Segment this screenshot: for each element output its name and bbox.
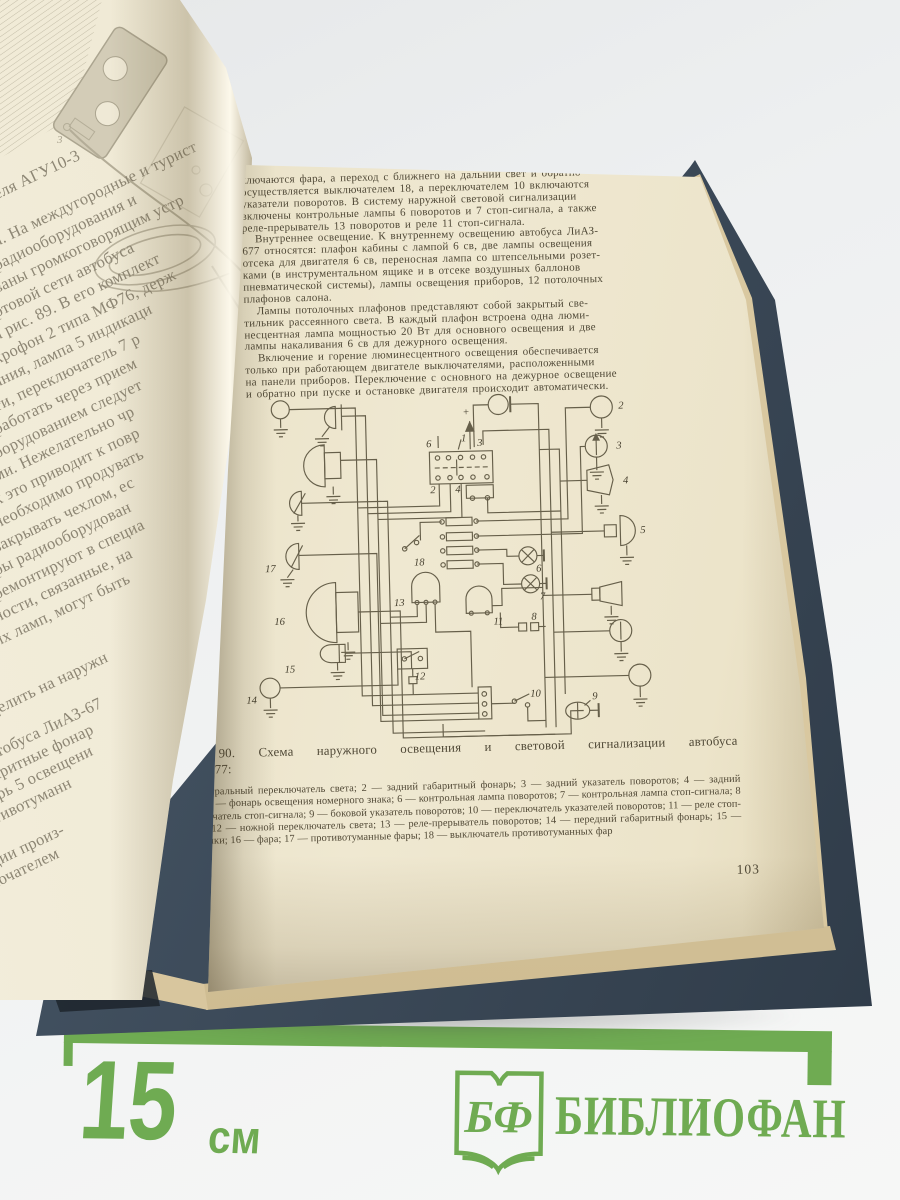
logo-monogram: БФ bbox=[463, 1091, 534, 1143]
diagram-label: 4 bbox=[623, 475, 629, 486]
diagram-label: 6 bbox=[536, 563, 542, 574]
ruler-right-tick bbox=[807, 1051, 831, 1085]
diagram-label: 3 bbox=[476, 438, 483, 449]
diagram-label: + bbox=[462, 407, 469, 418]
book-photo: 15 см БФ БИБЛИОФАН bbox=[0, 0, 900, 1200]
wiring-diagram-fig90: +1632423456789101112131415161718 bbox=[233, 385, 741, 749]
diagram-label: 6 bbox=[426, 439, 432, 450]
svg-text:3: 3 bbox=[56, 134, 63, 146]
diagram-label: 4 bbox=[455, 484, 461, 495]
diagram-label: 10 bbox=[530, 689, 542, 700]
ruler-unit-label: см bbox=[207, 1114, 263, 1161]
diagram-label: 5 bbox=[640, 525, 646, 536]
diagram-label: 11 bbox=[493, 616, 503, 627]
diagram-label: 13 bbox=[394, 598, 405, 609]
diagram-label: 3 bbox=[615, 441, 622, 452]
diagram-label: 9 bbox=[592, 691, 598, 702]
diagram-label: 2 bbox=[618, 400, 624, 411]
diagram-label: 18 bbox=[414, 557, 426, 568]
diagram-label: 1 bbox=[461, 433, 467, 444]
diagram-label: 7 bbox=[540, 591, 546, 602]
book-logo-icon: БФ bbox=[448, 1065, 549, 1178]
diagram-label: 16 bbox=[274, 617, 286, 628]
diagram-label: 12 bbox=[415, 671, 427, 682]
body-text: ключаются фара, а переход с ближнего на … bbox=[241, 167, 618, 402]
diagram-label: 15 bbox=[285, 665, 296, 676]
diagram-label: 2 bbox=[430, 485, 436, 496]
diagram-label: 8 bbox=[531, 612, 537, 623]
logo-name: БИБЛИОФАН bbox=[555, 1088, 847, 1148]
ruler-length-label: 15 bbox=[76, 1044, 181, 1157]
